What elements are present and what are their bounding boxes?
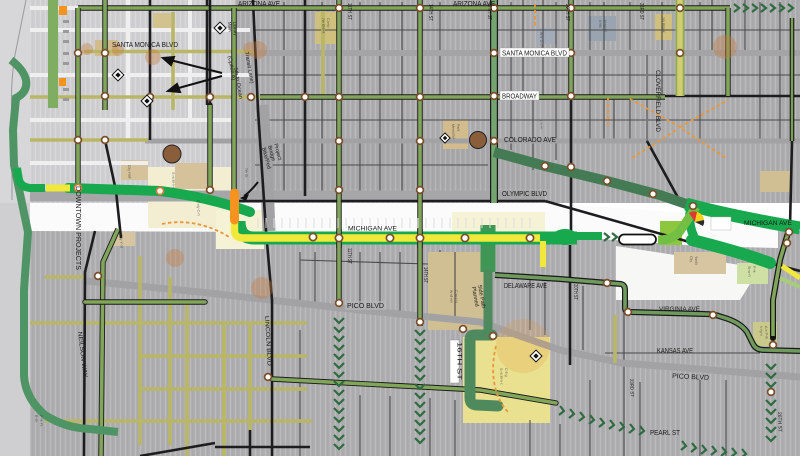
svg-text:VIRGINIA AVE: VIRGINIA AVE — [659, 306, 701, 313]
svg-text:SANTA MONICA BLVD: SANTA MONICA BLVD — [502, 51, 567, 58]
svg-text:Comp: Comp — [326, 18, 330, 28]
svg-text:St-w-rt: St-w-rt — [747, 266, 751, 277]
svg-text:C-nty C-rt: C-nty C-rt — [196, 200, 201, 216]
svg-text:B-ch: B-ch — [34, 415, 38, 423]
svg-text:20TH ST: 20TH ST — [572, 284, 578, 300]
svg-text:S-nt M-n-c: S-nt M-n-c — [171, 172, 176, 189]
svg-text:L-c-rn: L-c-rn — [539, 120, 543, 130]
svg-text:City: City — [689, 256, 693, 263]
svg-text:11TH ST: 11TH ST — [346, 248, 352, 264]
svg-text:Yards: Yards — [694, 256, 698, 265]
svg-text:26TH ST: 26TH ST — [776, 412, 783, 432]
svg-text:Memorial: Memorial — [451, 124, 456, 139]
svg-text:17TH ST: 17TH ST — [486, 3, 492, 20]
svg-text:W-dl-wn: W-dl-wn — [449, 290, 453, 303]
svg-text:DELAWARE AVE: DELAWARE AVE — [504, 283, 547, 290]
svg-text:A-blc: A-blc — [598, 20, 602, 29]
svg-text:11TH ST: 11TH ST — [346, 3, 352, 20]
svg-text:23RD ST: 23RD ST — [628, 379, 635, 397]
svg-text:ARIZONA AVE: ARIZONA AVE — [238, 1, 280, 8]
svg-text:P-rk: P-rk — [752, 266, 756, 273]
svg-text:14TH ST: 14TH ST — [427, 4, 433, 21]
svg-text:MICHIGAN AVE: MICHIGAN AVE — [348, 226, 398, 233]
svg-text:26t Bldwk: 26t Bldwk — [661, 17, 666, 33]
svg-text:SANTA MONICA BLVD: SANTA MONICA BLVD — [112, 42, 178, 49]
svg-text:C-ty Y-rd: C-ty Y-rd — [119, 234, 123, 248]
svg-text:Park: Park — [456, 124, 460, 132]
svg-text:23RD ST: 23RD ST — [638, 3, 644, 20]
svg-text:DOWNTOWN PROJECTS: DOWNTOWN PROJECTS — [74, 186, 81, 270]
svg-text:W-tr G-dn: W-tr G-dn — [539, 32, 544, 48]
svg-text:16TH ST: 16TH ST — [456, 342, 462, 381]
svg-text:City Hall: City Hall — [127, 165, 131, 179]
svg-text:14TH ST: 14TH ST — [422, 267, 428, 283]
svg-text:KANSAS AVE: KANSAS AVE — [657, 348, 693, 355]
svg-text:H-sp-t-l: H-sp-t-l — [603, 20, 607, 32]
svg-text:CLOVERFIELD BLVD: CLOVERFIELD BLVD — [654, 70, 660, 133]
svg-text:BROADWAY: BROADWAY — [502, 94, 537, 101]
svg-text:OLYMPIC BLVD: OLYMPIC BLVD — [502, 191, 547, 198]
svg-text:PICO BLVD: PICO BLVD — [347, 303, 384, 310]
svg-text:COLORADO AVE: COLORADO AVE — [504, 137, 556, 144]
svg-text:Main: Main — [227, 22, 233, 33]
svg-text:MICHIGAN AVE: MICHIGAN AVE — [744, 221, 792, 227]
svg-text:V-rg-n: V-rg-n — [759, 326, 763, 336]
svg-text:7th Bldwk: 7th Bldwk — [321, 18, 326, 34]
svg-text:S-nt M-n-c: S-nt M-n-c — [499, 368, 504, 385]
svg-text:P-rk #1: P-rk #1 — [39, 415, 43, 427]
svg-text:A-e P-rk: A-e P-rk — [764, 326, 768, 340]
svg-text:C-ll-g: C-ll-g — [504, 368, 508, 377]
svg-text:20TH ST: 20TH ST — [564, 4, 570, 21]
svg-text:7th St: 7th St — [244, 168, 248, 178]
svg-text:PEARL ST: PEARL ST — [650, 430, 681, 437]
svg-text:C-m-t-ry: C-m-t-ry — [454, 290, 458, 304]
